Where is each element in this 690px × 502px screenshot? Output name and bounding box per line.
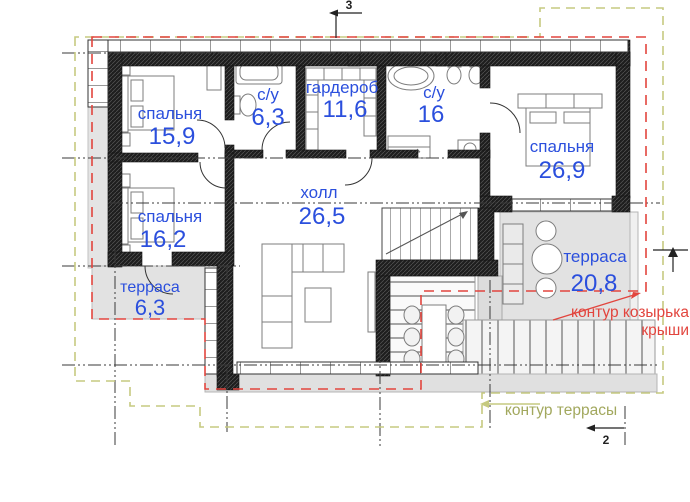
room-label-hall: холл 26,5 xyxy=(299,183,346,230)
window-hall-left xyxy=(205,268,217,374)
wall-corner xyxy=(217,374,239,390)
room-label-bathroom-large: с/у 16 xyxy=(418,83,446,128)
room-area: 26,5 xyxy=(299,203,346,230)
room-area: 16,2 xyxy=(140,226,187,253)
roof-contour-label-line1: контур козырька xyxy=(571,304,689,321)
tv-panel-icon xyxy=(368,272,375,332)
window-column-left xyxy=(88,40,108,107)
wall-right xyxy=(616,52,630,198)
floor-plan-drawing: 3 2 спальня 15,9 с/у 6,3 гардероб 11,6 с… xyxy=(0,0,690,502)
left-side-strip xyxy=(88,107,108,268)
wall-int xyxy=(286,150,346,158)
wall-hall-left xyxy=(217,266,233,376)
door-arc xyxy=(197,120,225,148)
door-arc xyxy=(200,162,226,188)
section-marker-right xyxy=(653,247,688,272)
room-area: 16 xyxy=(418,101,445,128)
section-marker-2-label: 2 xyxy=(603,433,610,447)
section-marker-2: 2 xyxy=(586,425,624,448)
window-hall-bottom xyxy=(237,362,478,374)
wall-stairs-bottom xyxy=(376,260,498,276)
wall-top xyxy=(95,52,630,66)
wall-stairs-right xyxy=(478,208,494,260)
room-area: 6,3 xyxy=(135,295,166,320)
room-area: 6,3 xyxy=(251,104,284,131)
wall-corner xyxy=(612,196,630,212)
room-area: 26,9 xyxy=(539,157,586,184)
wall-int xyxy=(225,66,234,120)
door-arc xyxy=(345,158,372,185)
section-marker-3: 3 xyxy=(329,0,362,38)
terrace-contour-label: контур террасы xyxy=(505,402,617,419)
wall-int xyxy=(480,66,490,88)
dining-table-icon xyxy=(404,305,464,368)
floor-plan: 3 2 спальня 15,9 с/у 6,3 гардероб 11,6 с… xyxy=(0,0,690,502)
room-name: терраса xyxy=(563,247,627,266)
room-name: гардероб xyxy=(306,78,379,97)
wall-int xyxy=(448,150,490,158)
room-name: спальня xyxy=(530,137,595,156)
room-area: 15,9 xyxy=(149,123,196,150)
wall-int xyxy=(296,66,305,158)
room-name: с/у xyxy=(423,83,445,102)
sofa-icon xyxy=(262,244,344,348)
room-name: терраса xyxy=(120,279,180,296)
window-bedroom-right-bottom xyxy=(512,199,612,211)
terrace-contour-annotation: контур террасы xyxy=(480,400,617,419)
staircase xyxy=(382,208,478,260)
door-arc xyxy=(490,103,520,133)
section-marker-3-label: 3 xyxy=(346,0,353,12)
room-name: спальня xyxy=(138,104,203,123)
wall-dining-left xyxy=(376,276,390,376)
room-name: холл xyxy=(300,183,337,202)
room-label-bedroom-bottom-left: спальня 16,2 xyxy=(138,207,203,253)
room-name: спальня xyxy=(138,207,203,226)
slat-deck xyxy=(463,320,655,374)
room-label-bedroom-right: спальня 26,9 xyxy=(530,137,595,184)
wall-int xyxy=(480,133,490,196)
roof-contour-label-line2: крыши xyxy=(641,322,689,339)
wall-int xyxy=(377,66,386,158)
coffee-table-icon xyxy=(305,288,331,322)
room-name: с/у xyxy=(257,85,279,104)
wall-bedroom-bl-bottom xyxy=(108,252,142,266)
room-label-bathroom-small: с/у 6,3 xyxy=(251,85,284,131)
room-area: 20,8 xyxy=(571,270,618,297)
wall-int xyxy=(370,150,418,158)
wall-bedroom-bl-bottom xyxy=(172,252,234,266)
window-band-top xyxy=(108,40,628,52)
room-area: 11,6 xyxy=(323,96,368,123)
